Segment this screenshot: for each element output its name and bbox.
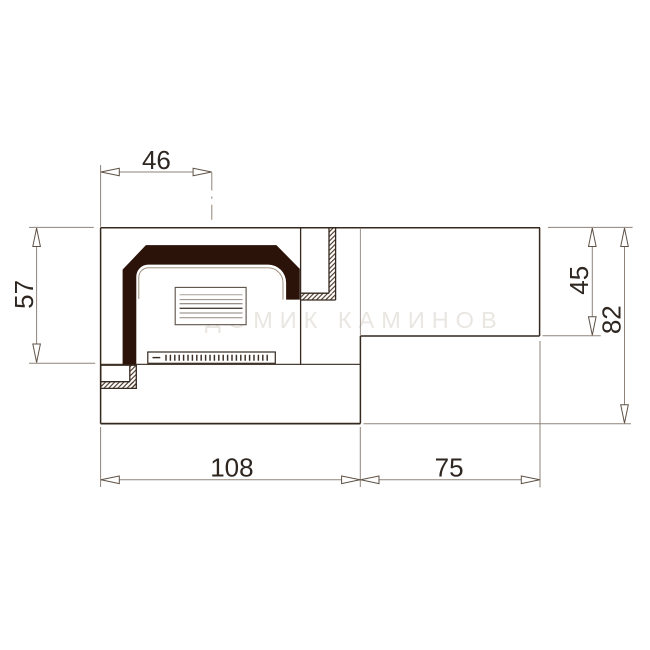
svg-text:82: 82 <box>597 305 627 334</box>
svg-text:ДОМИК КАМИНОВ: ДОМИК КАМИНОВ <box>205 307 504 333</box>
svg-text:46: 46 <box>142 145 171 175</box>
svg-text:57: 57 <box>9 280 39 309</box>
svg-text:75: 75 <box>435 452 464 482</box>
svg-text:108: 108 <box>210 453 253 483</box>
svg-text:45: 45 <box>564 266 594 295</box>
